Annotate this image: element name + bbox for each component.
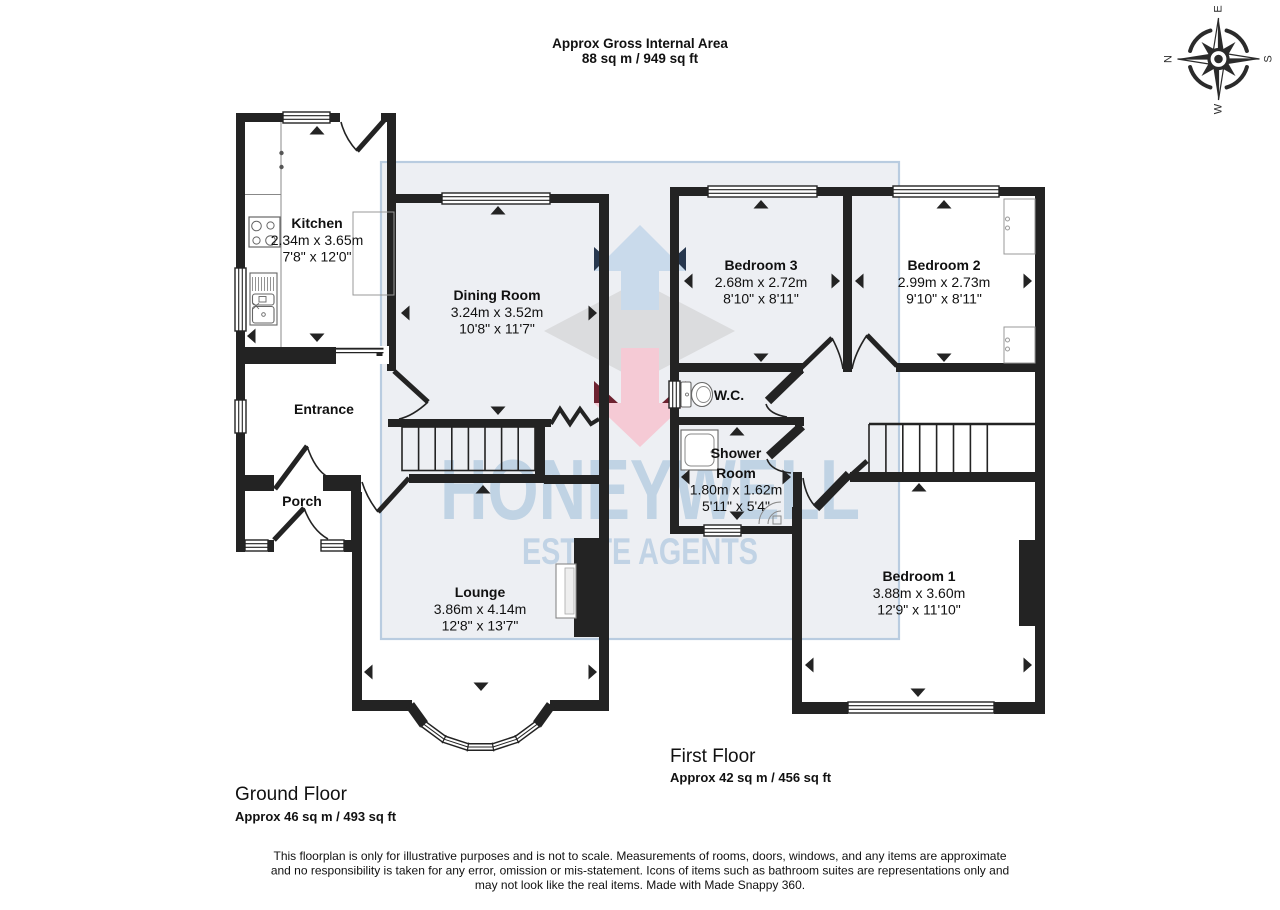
svg-text:7'8" x 12'0": 7'8" x 12'0" xyxy=(283,249,352,265)
svg-text:12'9" x 11'10": 12'9" x 11'10" xyxy=(877,602,961,618)
svg-text:Entrance: Entrance xyxy=(294,401,354,417)
svg-text:Shower: Shower xyxy=(711,445,762,461)
svg-text:2.99m x 2.73m: 2.99m x 2.73m xyxy=(898,274,991,290)
svg-text:Porch: Porch xyxy=(282,493,322,509)
svg-text:Approx 46 sq m / 493 sq ft: Approx 46 sq m / 493 sq ft xyxy=(235,809,397,824)
svg-text:8'10" x 8'11": 8'10" x 8'11" xyxy=(723,291,799,307)
svg-text:Dining Room: Dining Room xyxy=(453,287,540,303)
svg-text:Bedroom 1: Bedroom 1 xyxy=(882,568,955,584)
svg-text:Bedroom 2: Bedroom 2 xyxy=(907,257,980,273)
svg-text:10'8" x 11'7": 10'8" x 11'7" xyxy=(459,321,535,337)
svg-text:First Floor: First Floor xyxy=(670,746,756,767)
svg-text:E: E xyxy=(1213,5,1225,12)
svg-text:1.80m x 1.62m: 1.80m x 1.62m xyxy=(690,482,783,498)
svg-text:Room: Room xyxy=(716,465,756,481)
svg-text:Approx 42 sq m / 456 sq ft: Approx 42 sq m / 456 sq ft xyxy=(670,770,832,785)
svg-text:2.68m x 2.72m: 2.68m x 2.72m xyxy=(715,274,808,290)
svg-text:W.C.: W.C. xyxy=(714,387,744,403)
svg-text:This floorplan is only for ill: This floorplan is only for illustrative … xyxy=(273,849,1006,863)
svg-text:may not look like the real ite: may not look like the real items. Made w… xyxy=(475,878,805,892)
svg-text:3.88m x 3.60m: 3.88m x 3.60m xyxy=(873,585,966,601)
svg-text:3.24m x 3.52m: 3.24m x 3.52m xyxy=(451,304,544,320)
svg-text:9'10" x 8'11": 9'10" x 8'11" xyxy=(906,291,982,307)
svg-text:S: S xyxy=(1263,55,1275,62)
svg-text:and no responsibility is taken: and no responsibility is taken for any e… xyxy=(271,864,1009,878)
svg-text:Bedroom 3: Bedroom 3 xyxy=(724,257,797,273)
svg-text:Approx Gross Internal Area: Approx Gross Internal Area xyxy=(552,36,728,51)
svg-text:Lounge: Lounge xyxy=(455,584,506,600)
svg-text:W: W xyxy=(1213,103,1225,114)
svg-text:Kitchen: Kitchen xyxy=(291,215,342,231)
svg-text:N: N xyxy=(1163,55,1175,63)
svg-text:2.34m x 3.65m: 2.34m x 3.65m xyxy=(271,232,364,248)
svg-text:3.86m x 4.14m: 3.86m x 4.14m xyxy=(434,601,527,617)
svg-text:12'8" x 13'7": 12'8" x 13'7" xyxy=(442,618,519,634)
svg-text:Ground Floor: Ground Floor xyxy=(235,784,348,805)
svg-text:88 sq m / 949 sq ft: 88 sq m / 949 sq ft xyxy=(582,51,699,66)
